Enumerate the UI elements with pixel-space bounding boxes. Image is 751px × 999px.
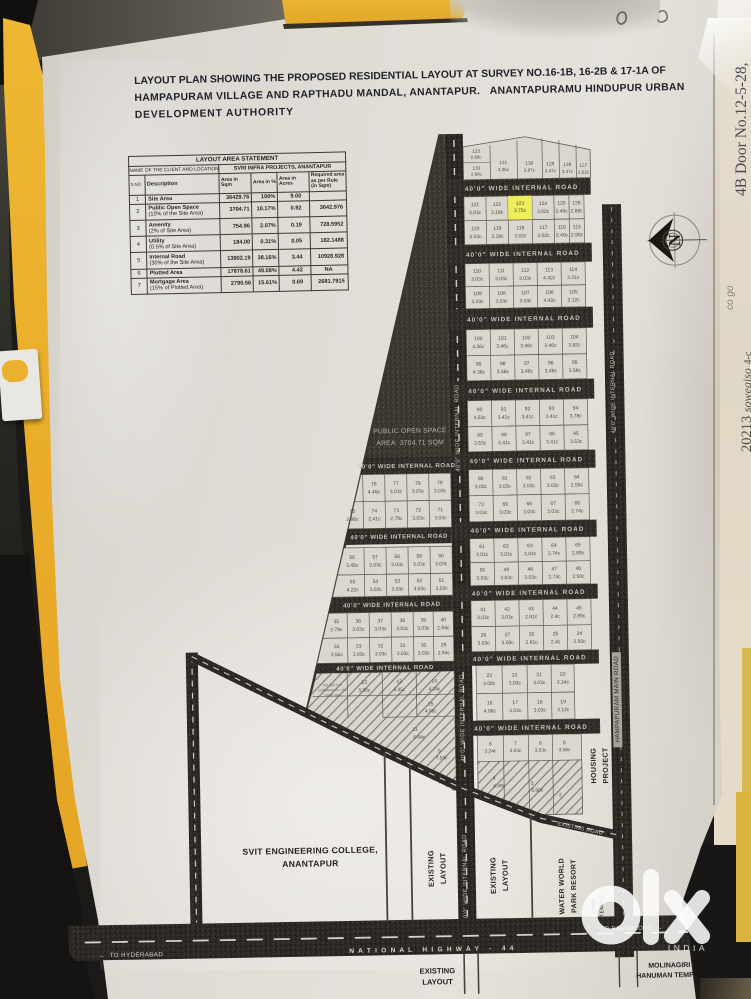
svg-text:INDIA: INDIA xyxy=(668,943,708,953)
